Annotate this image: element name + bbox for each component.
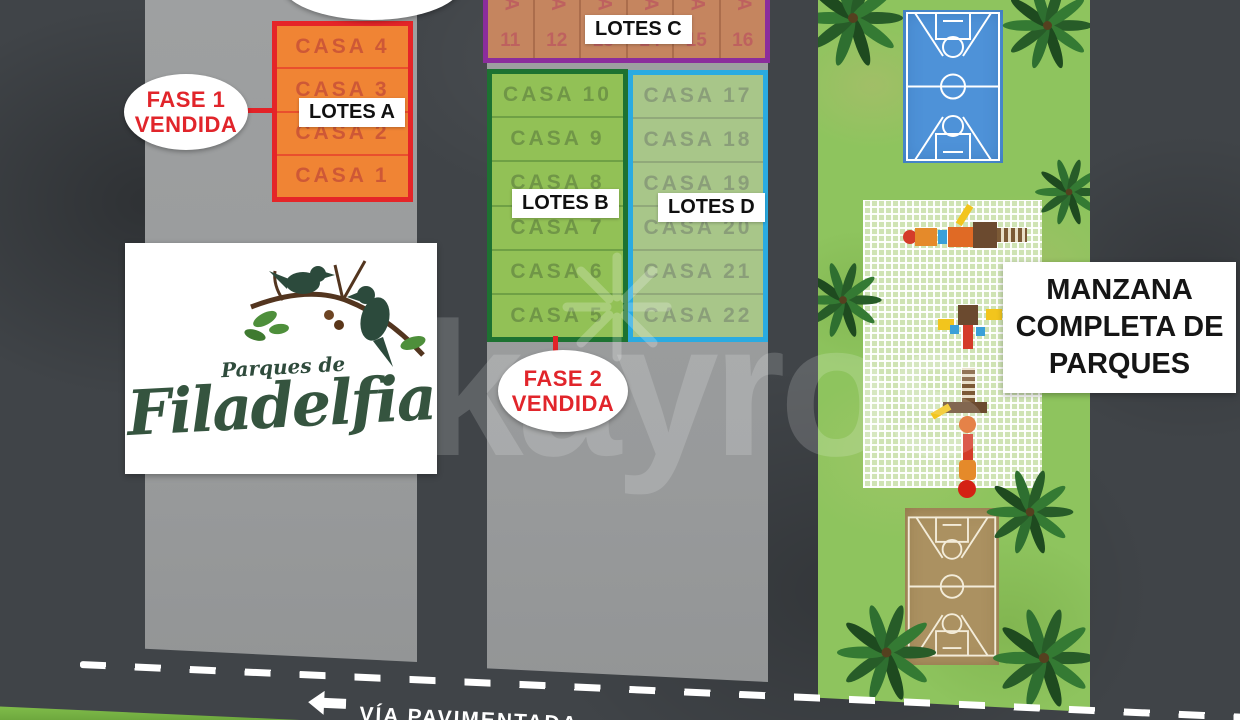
lot-unit: CASA 1: [277, 156, 408, 197]
left-arrow-icon: [307, 690, 346, 720]
badge-fase2: FASE 2 VENDIDA: [498, 350, 628, 432]
lot-unit: CASA 9: [492, 118, 623, 162]
lotes-c-label: LOTES C: [585, 15, 692, 44]
lot-unit: CASA 10: [492, 74, 623, 118]
block-lotes-c: CASA11 CASA12 CASA13 CASA14 CASA15 CASA1…: [483, 0, 770, 63]
palm-tree: [1033, 156, 1105, 228]
lot-unit: CASA 17: [633, 75, 763, 119]
lot-unit: CASA12: [535, 0, 582, 58]
watermark-star-icon: [562, 252, 672, 367]
logo-box: Parques de Filadelfia: [125, 243, 437, 474]
palm-tree: [1000, 0, 1095, 73]
grass-corner: [0, 702, 300, 720]
park-label-box: MANZANA COMPLETA DE PARQUES: [1003, 262, 1236, 393]
road-label: VÍA PAVIMENTADA: [359, 703, 579, 720]
lot-unit: CASA11: [488, 0, 535, 58]
logo-title: Filadelfia: [125, 361, 437, 450]
palm-tree: [984, 466, 1076, 558]
connector-fase1: [246, 108, 273, 113]
lot-unit: CASA 4: [277, 26, 408, 69]
site-plan: VÍA PAVIMENTADA: [0, 0, 1240, 720]
badge-fase1: FASE 1 VENDIDA: [124, 74, 248, 150]
palm-tree: [990, 604, 1098, 712]
playground-structure: [903, 214, 1003, 258]
lot-unit: CASA16: [721, 0, 766, 58]
palm-tree: [800, 0, 906, 71]
lotes-b-label: LOTES B: [512, 189, 619, 218]
lotes-a-label: LOTES A: [299, 98, 405, 127]
lotes-d-label: LOTES D: [658, 193, 765, 222]
palm-tree: [834, 600, 939, 705]
basketball-court-blue: [903, 10, 1003, 163]
block-lotes-a: CASA 4 CASA 3 CASA 2 CASA 1 LOTES A: [272, 21, 413, 202]
lot-unit: CASA 18: [633, 119, 763, 163]
